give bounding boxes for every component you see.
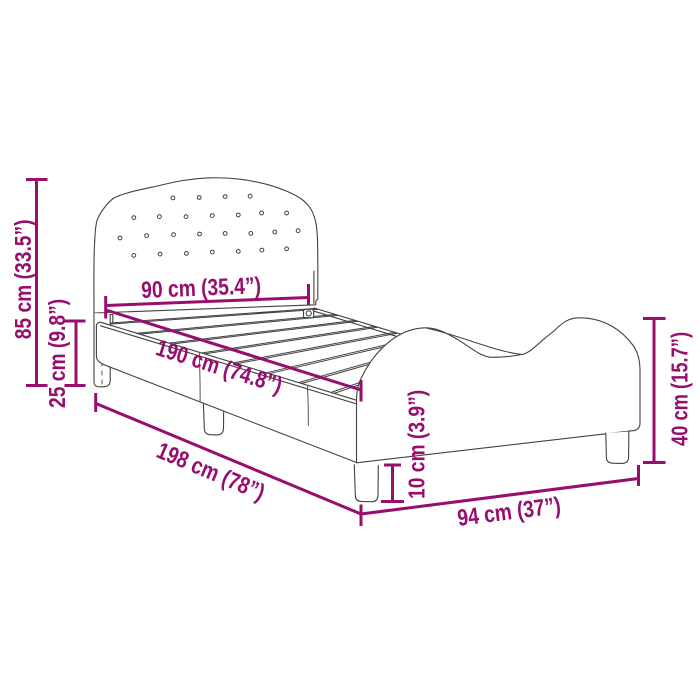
svg-text:10 cm (3.9”): 10 cm (3.9”) [404, 390, 430, 499]
svg-text:85 cm (33.5”): 85 cm (33.5”) [10, 219, 36, 339]
svg-text:25 cm (9.8”): 25 cm (9.8”) [44, 299, 70, 408]
svg-text:90 cm (35.4”): 90 cm (35.4”) [141, 272, 262, 303]
svg-text:40 cm (15.7”): 40 cm (15.7”) [667, 332, 693, 446]
